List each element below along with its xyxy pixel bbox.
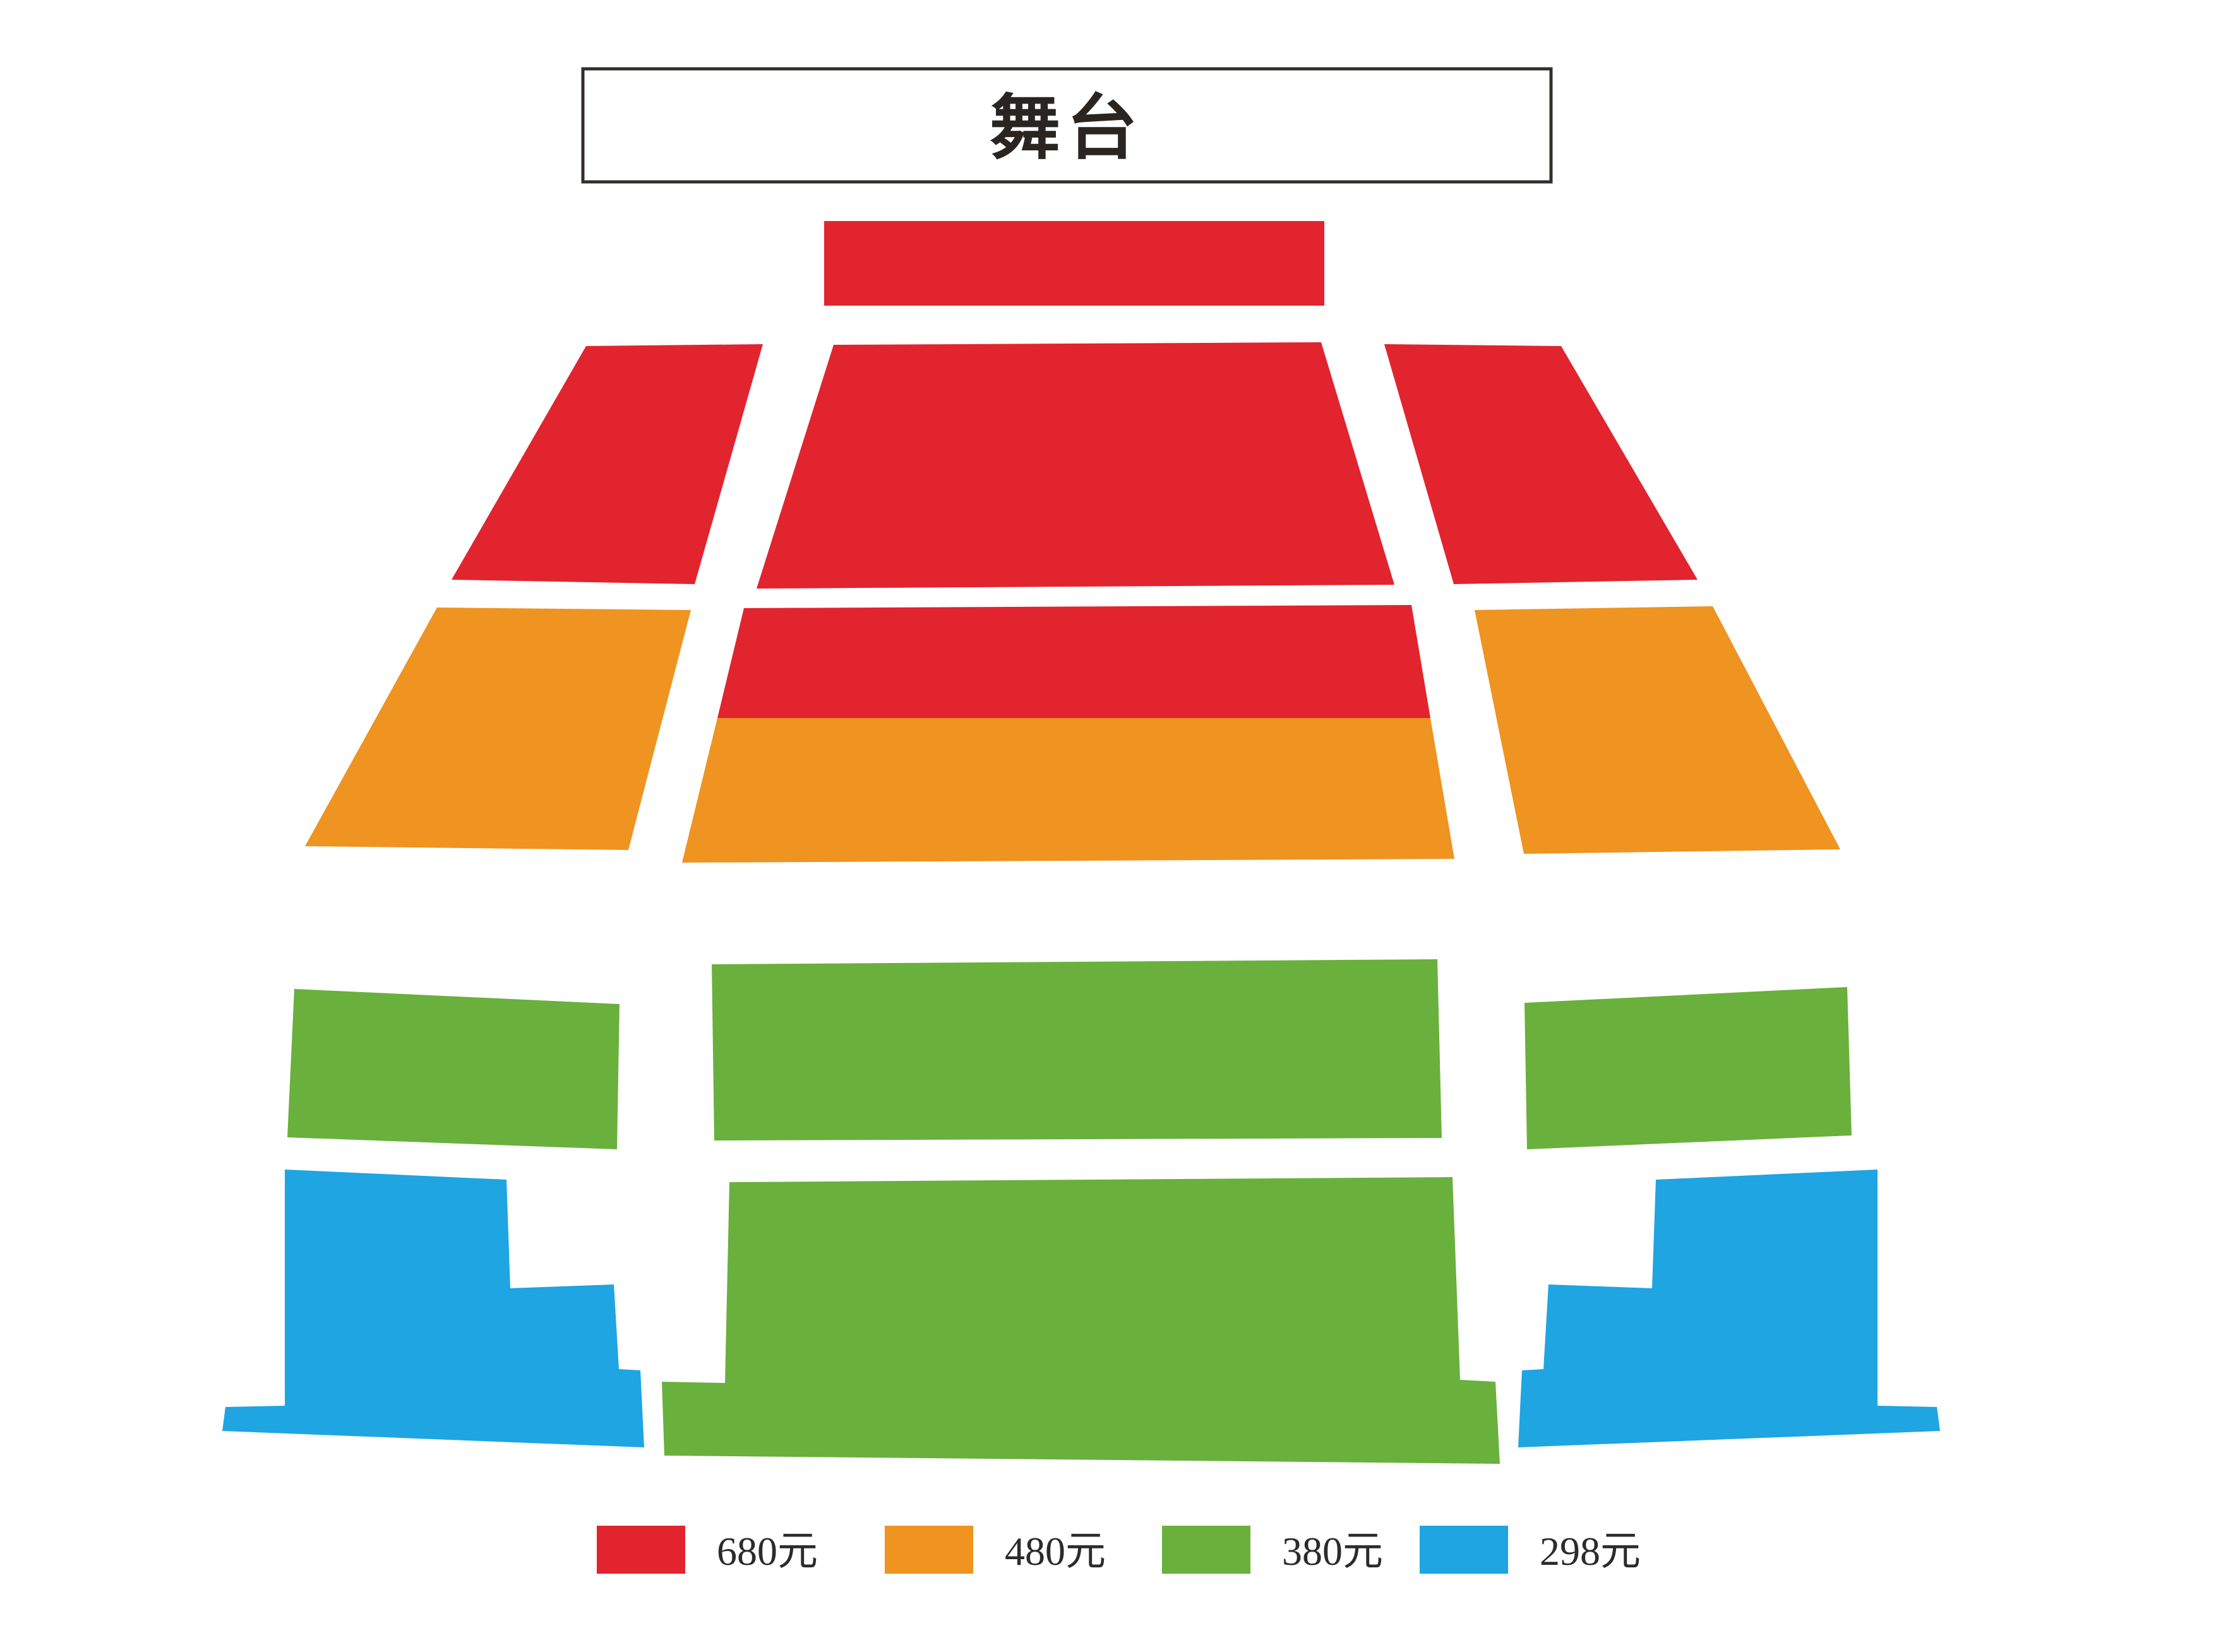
section-rear-right[interactable]: 380元: [1524, 987, 1852, 1149]
section-mid-left[interactable]: 480元: [305, 608, 691, 850]
sections-layer: 680元680元680元680元480元680元480元480元380元380元…: [222, 221, 1940, 1464]
section-orchestra-center[interactable]: 680元: [757, 342, 1394, 589]
section-back-left-side[interactable]: 298元: [222, 1170, 644, 1447]
legend-label-z298: 298元: [1540, 1529, 1641, 1574]
section-back-center[interactable]: 380元: [662, 1177, 1500, 1464]
section-mid-center-front[interactable]: 680元: [717, 605, 1430, 718]
legend-label-z680: 680元: [717, 1529, 818, 1574]
seating-chart-canvas: 舞台 680元680元680元680元480元680元480元480元380元3…: [0, 0, 2216, 1652]
stage-label: 舞台: [990, 90, 1144, 168]
theater-seating-chart: 舞台 680元680元680元680元480元680元480元480元380元3…: [0, 0, 2216, 1652]
section-mid-right[interactable]: 480元: [1475, 606, 1840, 854]
legend-swatch-z380: [1162, 1526, 1250, 1574]
section-rear-center[interactable]: 380元: [712, 959, 1442, 1140]
legend-swatch-z480: [885, 1526, 973, 1574]
section-orchestra-left[interactable]: 680元: [452, 344, 763, 584]
section-mid-center-back[interactable]: 480元: [682, 718, 1454, 863]
legend: 680元480元380元298元: [597, 1526, 1641, 1574]
legend-label-z480: 480元: [1005, 1529, 1106, 1574]
section-front-row-center[interactable]: 680元: [824, 221, 1324, 306]
section-rear-left[interactable]: 380元: [287, 989, 620, 1149]
legend-label-z380: 380元: [1282, 1529, 1383, 1574]
legend-swatch-z680: [597, 1526, 685, 1574]
legend-swatch-z298: [1420, 1526, 1508, 1574]
section-back-right-side[interactable]: 298元: [1518, 1170, 1940, 1447]
section-orchestra-right[interactable]: 680元: [1384, 344, 1698, 584]
